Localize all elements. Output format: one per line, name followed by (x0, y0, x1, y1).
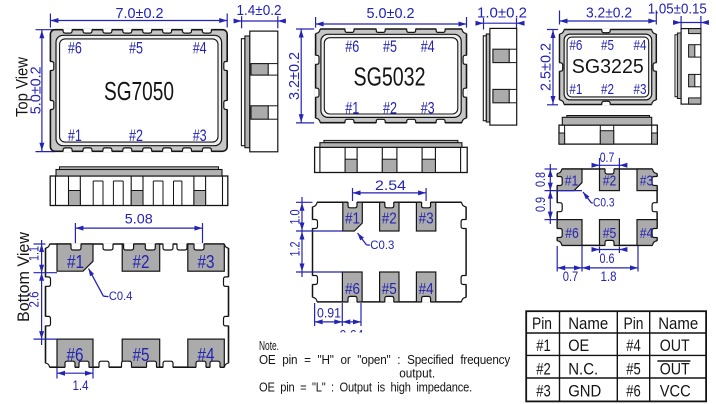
svg-text:#4: #4 (640, 225, 654, 242)
svg-text:#1: #1 (345, 211, 360, 228)
svg-text:#4: #4 (634, 37, 647, 54)
svg-text:Name: Name (658, 314, 698, 333)
svg-text:#3: #3 (193, 126, 207, 145)
svg-text:#2: #2 (536, 360, 551, 379)
svg-text:1.4±0.2: 1.4±0.2 (237, 3, 282, 19)
svg-text:#5: #5 (129, 39, 143, 58)
svg-text:#6: #6 (345, 281, 360, 298)
svg-text:#1: #1 (536, 336, 551, 355)
svg-text:#2: #2 (129, 126, 143, 145)
svg-text:1.8: 1.8 (601, 268, 617, 284)
svg-text:#4: #4 (421, 37, 435, 56)
svg-text:OUT: OUT (660, 336, 690, 355)
svg-text:1.4: 1.4 (73, 377, 89, 393)
svg-text:#3: #3 (536, 382, 551, 401)
svg-text:#5: #5 (383, 37, 397, 56)
svg-text:#3: #3 (640, 173, 654, 190)
svg-text:5.0±0.2: 5.0±0.2 (367, 5, 415, 22)
svg-text:output.: output. (399, 367, 435, 381)
svg-text:Pin: Pin (624, 314, 644, 333)
svg-text:5.08: 5.08 (125, 211, 153, 227)
svg-text:#1: #1 (565, 173, 579, 190)
svg-text:#5: #5 (626, 360, 641, 379)
svg-text:GND: GND (568, 382, 601, 401)
svg-text:1.0±0.2: 1.0±0.2 (477, 5, 527, 22)
svg-text:Note.: Note. (259, 339, 279, 353)
svg-text:Pin: Pin (532, 314, 552, 333)
svg-text:7.0±0.2: 7.0±0.2 (116, 5, 164, 22)
svg-text:0.7: 0.7 (563, 268, 579, 284)
svg-text:SG7050: SG7050 (104, 76, 174, 106)
svg-text:#6: #6 (68, 39, 82, 58)
svg-text:#1: #1 (67, 252, 84, 272)
svg-text:SG5032: SG5032 (354, 62, 426, 92)
svg-text:0.6: 0.6 (600, 250, 615, 266)
svg-text:#3: #3 (419, 211, 434, 228)
svg-text:#5: #5 (603, 225, 617, 242)
svg-text:2.5±0.2: 2.5±0.2 (538, 43, 555, 91)
svg-text:#1: #1 (569, 81, 582, 98)
svg-text:#4: #4 (193, 39, 207, 58)
svg-text:#4: #4 (198, 345, 215, 365)
svg-text:3.2±0.2: 3.2±0.2 (286, 52, 303, 100)
svg-text:#2: #2 (383, 99, 397, 118)
svg-text:#3: #3 (421, 99, 435, 118)
svg-text:#1: #1 (345, 99, 359, 118)
svg-text:SG3225: SG3225 (572, 56, 644, 78)
svg-text:0.8: 0.8 (532, 172, 548, 187)
svg-text:1.0: 1.0 (287, 209, 303, 224)
svg-text:0.9: 0.9 (532, 197, 548, 212)
svg-text:#2: #2 (601, 81, 614, 98)
svg-text:N.C.: N.C. (568, 360, 598, 379)
svg-text:C0.4: C0.4 (109, 289, 133, 303)
svg-text:C0.3: C0.3 (593, 195, 615, 209)
svg-text:1.1: 1.1 (26, 246, 42, 261)
svg-text:#2: #2 (133, 252, 150, 272)
svg-text:#5: #5 (382, 281, 397, 298)
svg-text:OE pin = "L" : Output is high: OE pin = "L" : Output is high impedance. (259, 380, 472, 394)
svg-text:#2: #2 (382, 211, 397, 228)
svg-text:#6: #6 (67, 345, 84, 365)
svg-text:0.7: 0.7 (600, 149, 615, 165)
svg-text:2.6: 2.6 (26, 291, 42, 307)
svg-text:#1: #1 (68, 126, 82, 145)
svg-text:OE pin = "H" or "open" : Speci: OE pin = "H" or "open" : Specified frequ… (259, 353, 511, 367)
svg-text:#3: #3 (634, 81, 647, 98)
svg-text:#5: #5 (133, 345, 150, 365)
svg-text:OUT: OUT (660, 360, 690, 379)
svg-text:2.54: 2.54 (375, 177, 406, 193)
svg-text:#4: #4 (626, 336, 641, 355)
svg-text:#6: #6 (345, 37, 359, 56)
svg-text:1.2: 1.2 (287, 241, 303, 256)
svg-text:Name: Name (568, 314, 608, 333)
svg-text:#2: #2 (603, 173, 617, 190)
svg-text:0.91: 0.91 (317, 305, 341, 321)
svg-text:C0.3: C0.3 (370, 238, 394, 252)
svg-text:#6: #6 (626, 382, 641, 401)
svg-text:#3: #3 (198, 252, 215, 272)
svg-text:OE: OE (568, 336, 589, 355)
svg-text:VCC: VCC (660, 382, 691, 401)
svg-text:#6: #6 (565, 225, 579, 242)
svg-text:#6: #6 (569, 37, 582, 54)
svg-text:3.2±0.2: 3.2±0.2 (586, 5, 632, 22)
svg-text:#5: #5 (601, 37, 614, 54)
svg-text:#4: #4 (419, 281, 434, 298)
svg-text:1.05±0.15: 1.05±0.15 (648, 1, 707, 18)
